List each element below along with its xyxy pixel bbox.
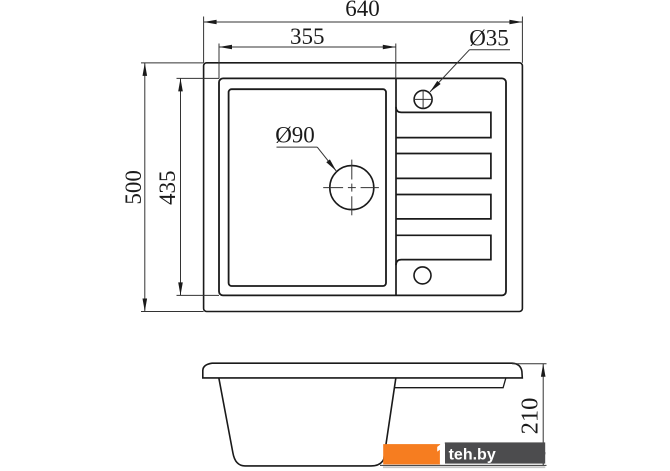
svg-text:640: 640 [345, 0, 380, 21]
svg-text:435: 435 [155, 170, 180, 205]
svg-text:355: 355 [290, 24, 325, 49]
svg-text:210: 210 [517, 398, 544, 435]
svg-text:teh.by: teh.by [449, 447, 496, 464]
svg-text:Ø90: Ø90 [275, 123, 315, 148]
svg-text:500: 500 [121, 170, 146, 205]
svg-text:Ø35: Ø35 [469, 26, 509, 51]
